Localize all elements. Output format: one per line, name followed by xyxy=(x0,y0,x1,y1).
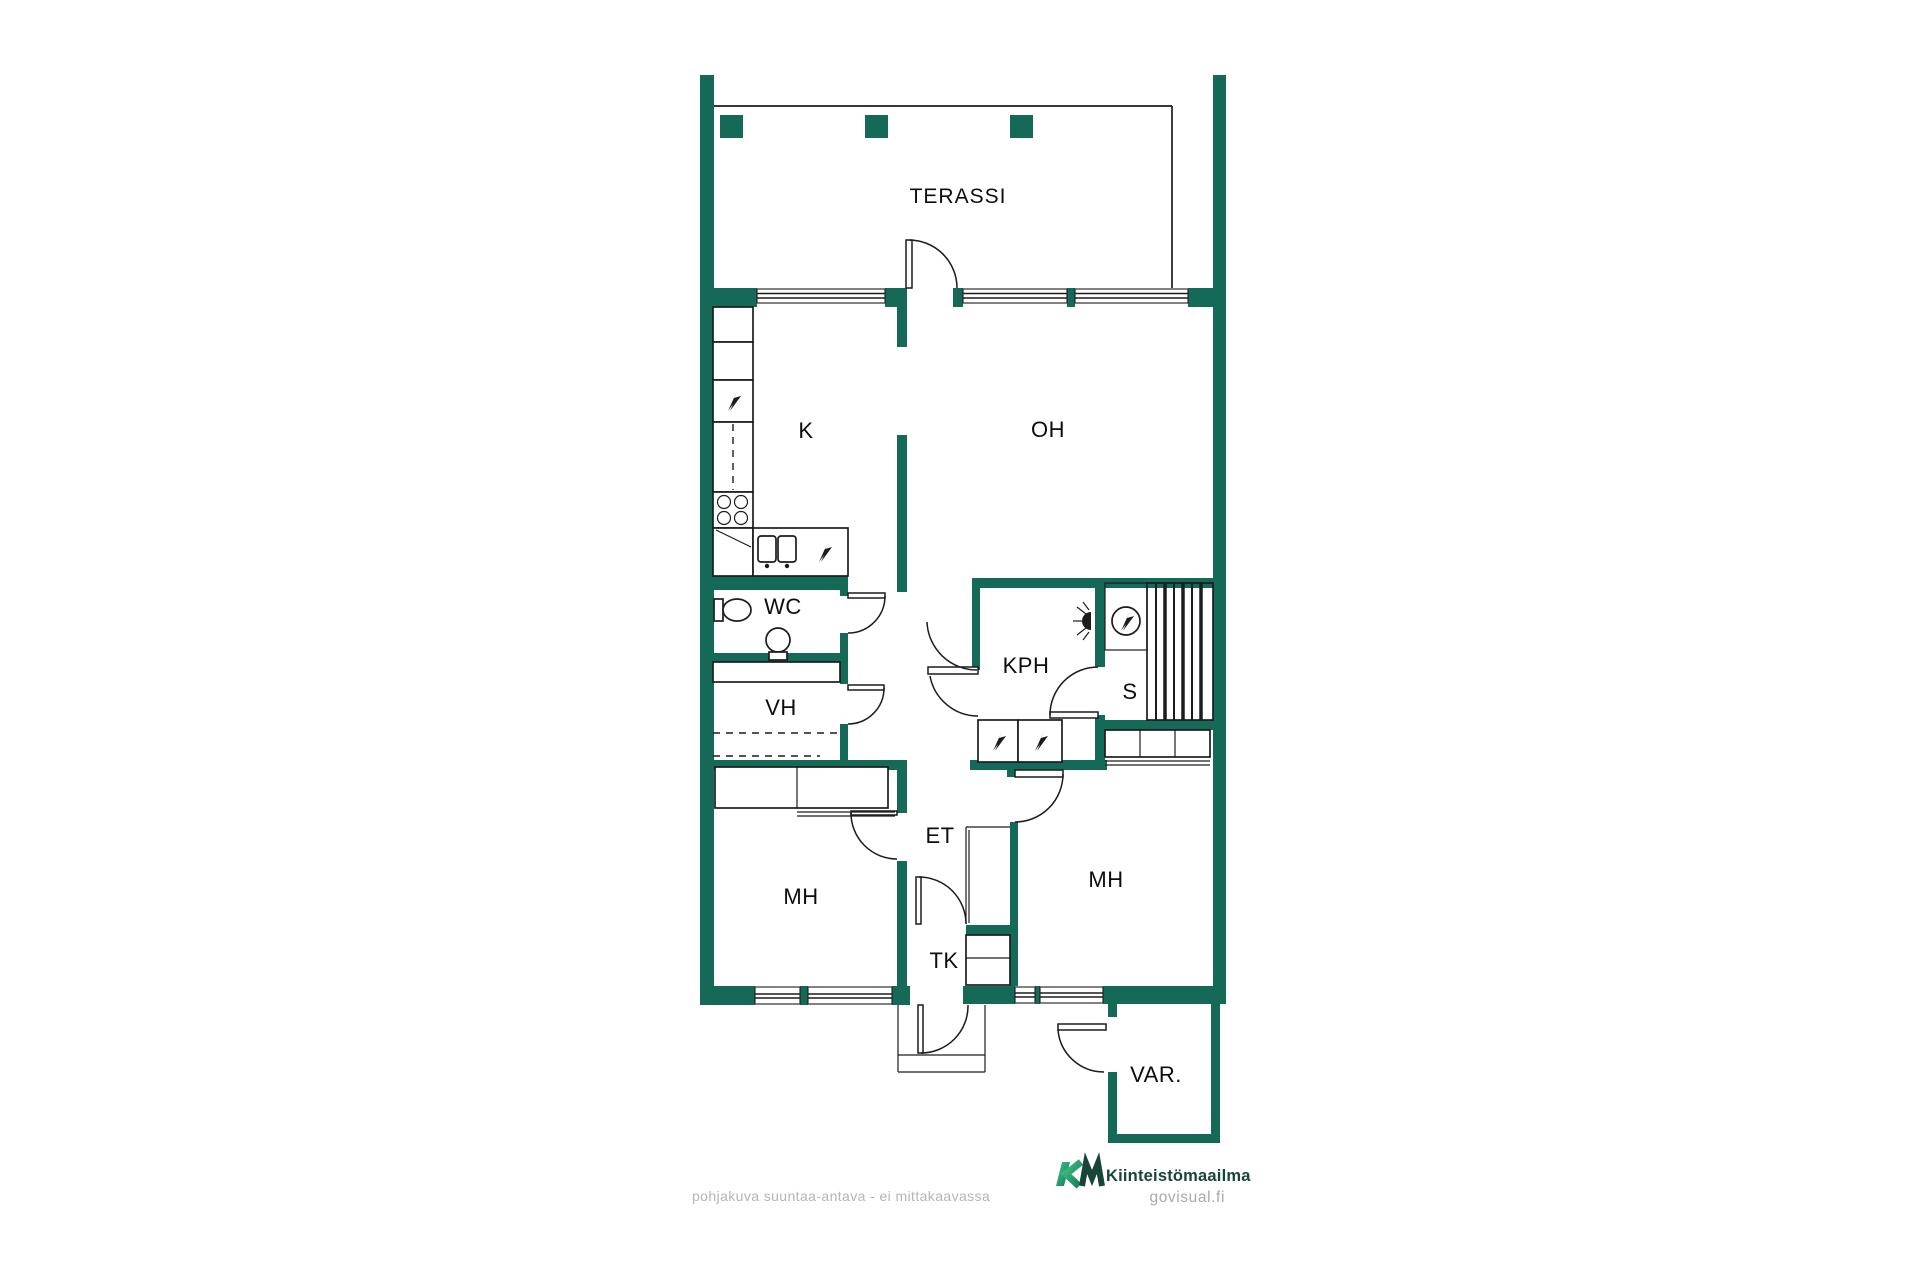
room-label-et: ET xyxy=(925,823,954,848)
room-label-living: OH xyxy=(1031,417,1065,442)
terrace-post-icon xyxy=(865,115,888,138)
vh-door xyxy=(848,685,884,724)
entry-closet xyxy=(966,827,1010,923)
wc-right-wall xyxy=(840,633,848,653)
cabinet xyxy=(713,307,753,342)
top-wall xyxy=(953,288,963,307)
wc-right-wall xyxy=(840,590,848,596)
room-label-wc: WC xyxy=(764,594,802,619)
toilet-icon xyxy=(714,599,751,621)
bathroom-sauna-wall xyxy=(1095,588,1105,667)
vh-right-wall xyxy=(840,662,848,684)
right-wall xyxy=(1213,75,1226,1004)
living-window-2 xyxy=(1075,289,1188,303)
windows xyxy=(755,289,1188,1004)
cabinet xyxy=(713,342,753,380)
brand-footer: Kiinteistömaailma govisual.fi pohjakuva … xyxy=(692,1162,1251,1206)
brand-name: Kiinteistömaailma xyxy=(1106,1167,1251,1185)
sauna-door xyxy=(1050,667,1098,718)
disclaimer-caption: pohjakuva suuntaa-antava - ei mittakaava… xyxy=(692,1188,990,1204)
bottom-wall xyxy=(963,986,1015,1004)
bathroom-left-wall xyxy=(972,588,980,670)
vestibule-closet xyxy=(966,935,1010,985)
room-label-tk: TK xyxy=(929,948,958,973)
interior-walls xyxy=(700,307,1226,1143)
top-wall xyxy=(885,288,907,307)
top-wall xyxy=(700,288,757,307)
entry-closet-wall xyxy=(1010,822,1018,986)
bedroom-left-window-1 xyxy=(755,987,800,1004)
storage-right-wall xyxy=(1211,1004,1220,1143)
shower-icon xyxy=(1073,602,1091,640)
room-label-mh-right: MH xyxy=(1088,867,1123,892)
hall-left-wall xyxy=(897,770,907,813)
bathroom-fixtures xyxy=(978,602,1091,762)
sauna-benches xyxy=(1147,583,1213,720)
room-label-mh-left: MH xyxy=(783,884,818,909)
bedroom-left-window-2 xyxy=(808,987,892,1004)
bottom-wall-mullion xyxy=(1035,986,1040,1004)
storage-door xyxy=(1058,1024,1106,1072)
storage-left-wall xyxy=(1108,1072,1117,1134)
wc-door xyxy=(848,593,885,633)
bottom-wall xyxy=(892,986,910,1005)
bottom-wall xyxy=(1103,986,1226,1004)
room-label-var: VAR. xyxy=(1130,1062,1182,1087)
room-label-kitchen: K xyxy=(798,418,813,443)
sauna-heater-icon xyxy=(1105,583,1147,650)
front-door xyxy=(918,1005,968,1053)
top-wall xyxy=(1188,288,1226,307)
hall-left-wall xyxy=(897,861,907,986)
washbasin-icon xyxy=(766,628,790,660)
room-label-vh: VH xyxy=(765,695,797,720)
washer-icon xyxy=(978,720,1018,762)
room-label-sauna: S xyxy=(1122,679,1137,704)
floor-plan-drawing: TERASSI K OH WC VH KPH S ET TK MH MH VAR… xyxy=(0,0,1920,1280)
bottom-wall xyxy=(700,986,755,1005)
terrace-post-icon xyxy=(720,115,743,138)
bathroom-door xyxy=(927,622,978,716)
kitchen-fixtures xyxy=(713,307,848,576)
room-label-kph: KPH xyxy=(1003,653,1050,678)
storage-left-wall xyxy=(1108,1004,1117,1017)
bedroom-left-door xyxy=(851,811,897,859)
sauna-fixtures xyxy=(1105,583,1213,720)
km-logo-icon xyxy=(1056,1162,1102,1186)
vestibule-inner-door xyxy=(916,877,966,924)
stove-icon xyxy=(713,492,753,528)
living-window-1 xyxy=(963,289,1067,303)
bottom-wall-mullion xyxy=(800,986,808,1005)
floor-plan-page: TERASSI K OH WC VH KPH S ET TK MH MH VAR… xyxy=(0,0,1920,1280)
corner-counter xyxy=(713,528,753,576)
wc-top-wall xyxy=(700,576,848,590)
left-wall xyxy=(700,75,714,1005)
terrace-door xyxy=(906,240,957,288)
bedroom-right-window-2 xyxy=(1040,987,1103,1003)
kitchen-living-divider xyxy=(897,435,907,592)
bedroom-left-wardrobe xyxy=(715,767,895,816)
entrance-recess xyxy=(898,1005,985,1072)
vh-right-wall xyxy=(840,724,848,760)
sauna-bottom-wall xyxy=(1095,720,1226,730)
entry-vestibule-wall xyxy=(966,925,1015,935)
kitchen-window xyxy=(757,289,885,303)
bedroom-right-wardrobe xyxy=(1105,730,1210,765)
watermark: govisual.fi xyxy=(1149,1189,1225,1206)
bedroom-right-window-1 xyxy=(1015,987,1035,1003)
bedroom-right-door xyxy=(1015,770,1063,822)
terrace-post-icon xyxy=(1010,115,1033,138)
storage-bottom-wall xyxy=(1108,1134,1220,1143)
room-label-terrace: TERASSI xyxy=(910,185,1007,208)
dryer-icon xyxy=(1018,720,1062,762)
kitchen-living-divider xyxy=(897,307,907,347)
top-wall-mullion xyxy=(1067,288,1075,307)
